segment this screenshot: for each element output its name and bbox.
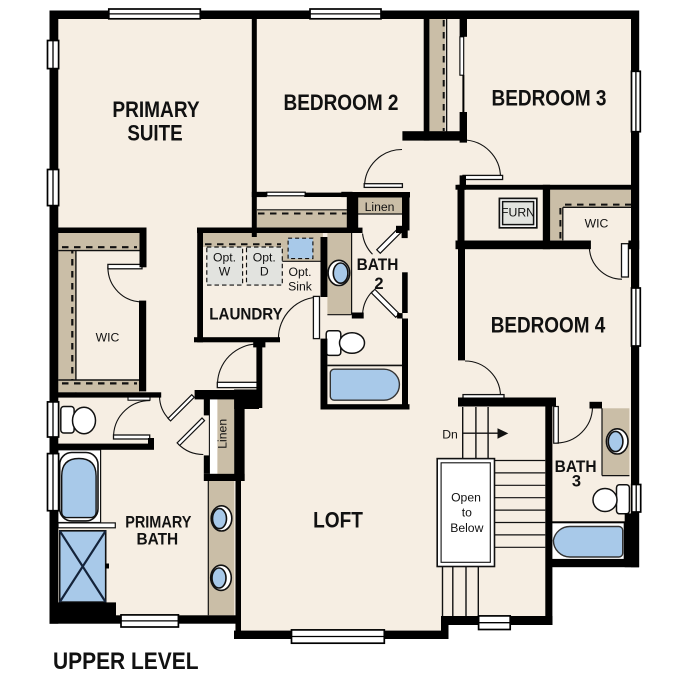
- svg-text:Linen: Linen: [365, 200, 395, 214]
- svg-text:BEDROOM 3: BEDROOM 3: [492, 86, 607, 111]
- svg-text:LAUNDRY: LAUNDRY: [209, 306, 283, 324]
- svg-text:LOFT: LOFT: [313, 507, 363, 532]
- svg-text:BATH: BATH: [357, 256, 399, 274]
- svg-text:Opt.: Opt.: [253, 251, 276, 265]
- svg-text:to: to: [462, 506, 472, 520]
- svg-text:BATH: BATH: [136, 531, 178, 549]
- svg-text:W: W: [219, 265, 231, 279]
- svg-text:Opt.: Opt.: [213, 251, 236, 265]
- svg-text:Below: Below: [450, 521, 483, 535]
- svg-text:SUITE: SUITE: [127, 121, 182, 146]
- svg-text:Linen: Linen: [216, 419, 230, 449]
- svg-text:BEDROOM 2: BEDROOM 2: [284, 90, 399, 115]
- svg-text:D: D: [260, 265, 269, 279]
- svg-text:WIC: WIC: [585, 217, 609, 231]
- svg-text:UPPER LEVEL: UPPER LEVEL: [53, 648, 199, 675]
- svg-text:Dn: Dn: [442, 427, 458, 441]
- svg-text:PRIMARY: PRIMARY: [125, 514, 191, 532]
- svg-text:Opt.: Opt.: [288, 265, 311, 279]
- svg-text:BEDROOM 4: BEDROOM 4: [491, 313, 606, 338]
- svg-text:Sink: Sink: [288, 279, 313, 293]
- svg-text:FURN: FURN: [501, 205, 535, 219]
- svg-text:PRIMARY: PRIMARY: [112, 97, 200, 122]
- svg-text:3: 3: [572, 473, 581, 491]
- svg-text:Open: Open: [451, 491, 481, 505]
- svg-text:WIC: WIC: [96, 331, 120, 345]
